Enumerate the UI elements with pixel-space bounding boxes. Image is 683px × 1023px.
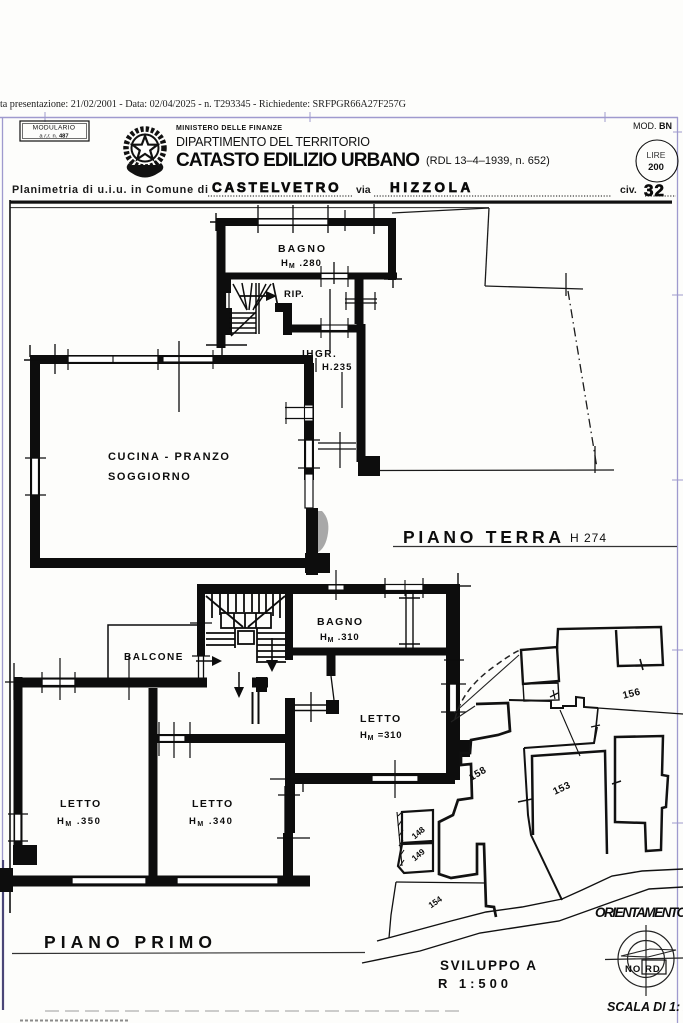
svg-text:PIANO PRIMO: PIANO PRIMO — [44, 932, 214, 952]
svg-text:Planimetria di u.i.u. in Comun: Planimetria di u.i.u. in Comune di — [12, 184, 208, 196]
svg-text:SVILUPPO A: SVILUPPO A — [440, 958, 536, 973]
svg-text:RD: RD — [645, 964, 661, 975]
svg-text:153: 153 — [551, 780, 572, 798]
svg-text:HIZZOLA: HIZZOLA — [390, 180, 472, 195]
svg-text:HM .340: HM .340 — [189, 816, 233, 828]
svg-text:BAGNO: BAGNO — [278, 243, 327, 255]
svg-text:ta presentazione: 21/02/2001 -: ta presentazione: 21/02/2001 - Data: 02/… — [0, 99, 407, 110]
svg-text:civ.: civ. — [620, 184, 637, 196]
svg-text:149: 149 — [409, 846, 427, 863]
svg-text:R 1:500: R 1:500 — [438, 976, 508, 991]
svg-text:BALCONE: BALCONE — [124, 652, 184, 663]
svg-text:HM =310: HM =310 — [360, 730, 402, 742]
svg-text:H.235: H.235 — [322, 362, 352, 373]
svg-text:HM .310: HM .310 — [320, 632, 359, 644]
svg-text:CATASTO EDILIZIO URBANO: CATASTO EDILIZIO URBANO — [176, 150, 420, 171]
svg-text:(RDL 13–4–1939, n. 652): (RDL 13–4–1939, n. 652) — [426, 155, 550, 167]
svg-text:LETTO: LETTO — [60, 798, 102, 810]
svg-text:CUCINA - PRANZO: CUCINA - PRANZO — [108, 451, 231, 463]
svg-text:LIRE: LIRE — [647, 150, 666, 160]
svg-text:32: 32 — [644, 181, 665, 200]
svg-text:148: 148 — [409, 824, 427, 841]
svg-text:HM .280: HM .280 — [281, 258, 322, 270]
svg-text:NO: NO — [625, 964, 641, 975]
svg-text:SOGGIORNO: SOGGIORNO — [108, 471, 191, 483]
svg-text:MODULARIO: MODULARIO — [33, 125, 76, 132]
svg-text:a r.r. n. 487: a r.r. n. 487 — [39, 134, 68, 140]
svg-text:LETTO: LETTO — [192, 798, 234, 810]
svg-text:H 274: H 274 — [570, 531, 607, 545]
svg-text:CASTELVETRO: CASTELVETRO — [212, 180, 340, 195]
svg-text:DIPARTIMENTO DEL TERRITORIO: DIPARTIMENTO DEL TERRITORIO — [176, 135, 370, 149]
svg-text:RIP.: RIP. — [284, 289, 304, 300]
svg-text:200: 200 — [648, 162, 664, 173]
svg-text:HM .350: HM .350 — [57, 816, 101, 828]
svg-text:BAGNO: BAGNO — [317, 616, 364, 628]
svg-text:ORIENTAMENTO: ORIENTAMENTO — [595, 905, 683, 920]
svg-text:154: 154 — [426, 894, 444, 910]
svg-text:SCALA DI 1: A: SCALA DI 1: A — [607, 1000, 683, 1014]
svg-text:156: 156 — [622, 687, 642, 702]
svg-text:LETTO: LETTO — [360, 713, 402, 725]
svg-text:MOD. BN: MOD. BN — [633, 121, 672, 131]
svg-text:via: via — [356, 184, 371, 196]
svg-text:MINISTERO DELLE FINANZE: MINISTERO DELLE FINANZE — [176, 125, 282, 132]
svg-text:PIANO TERRA: PIANO TERRA — [403, 527, 563, 547]
